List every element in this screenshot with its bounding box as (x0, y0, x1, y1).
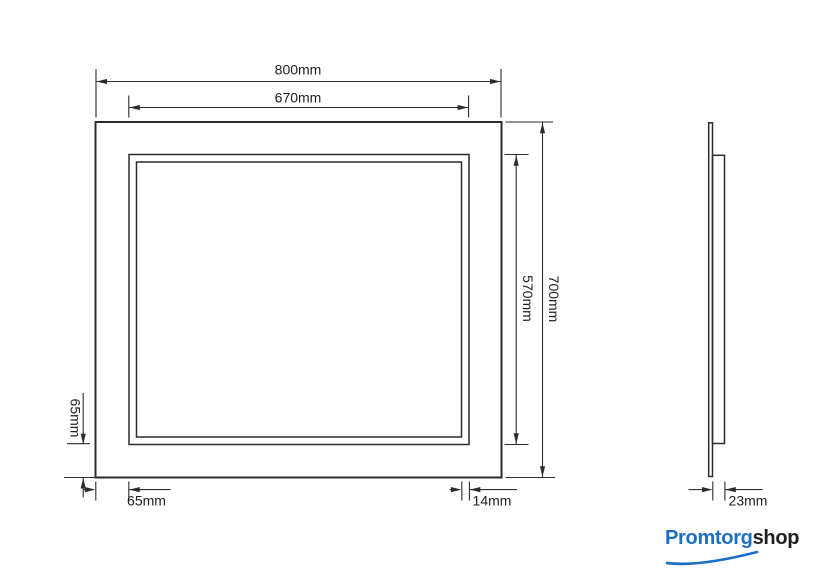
dim-depth: 23mm (689, 482, 768, 509)
dim-outer-height-label: 700mm (546, 276, 562, 323)
technical-drawing-page: { "page": { "background": "#ffffff" }, "… (0, 0, 840, 578)
dim-depth-label: 23mm (729, 493, 768, 509)
dim-bottom-margin: 65mm (84, 482, 171, 509)
dim-outer-width-label: 800mm (275, 62, 322, 78)
dim-inner-height: 570mm (505, 155, 536, 445)
side-view (709, 123, 725, 477)
brand-logo-swoosh-icon (664, 550, 760, 568)
dim-inner-height-label: 570mm (520, 275, 536, 322)
dim-inner-width: 670mm (129, 90, 469, 118)
mirror-outer-rect (96, 122, 502, 478)
brand-logo-primary-text: Promtorg (665, 527, 753, 549)
dim-left-margin-label: 65mm (68, 399, 84, 438)
brand-logo-secondary-text: shop (753, 527, 800, 549)
arrowhead-right-icon (458, 105, 469, 110)
dim-inner-width-label: 670mm (275, 90, 322, 106)
arrowhead-up-icon (81, 478, 86, 489)
dim-left-margin: 65mm (64, 393, 95, 498)
arrowhead-right-icon (451, 487, 462, 492)
arrowhead-left-icon (97, 79, 108, 84)
arrowhead-up-icon (540, 123, 545, 134)
mirror-frame-outer-rect (129, 155, 469, 445)
arrowhead-right-icon (490, 79, 501, 84)
mirror-frame-inner-rect (137, 162, 462, 437)
dim-frame-width-label: 14mm (473, 493, 512, 509)
arrowhead-down-icon (514, 433, 519, 444)
front-view (96, 122, 502, 478)
drawing-canvas: 800mm 670mm 570mm 700mm 65mm (0, 0, 840, 578)
brand-logo: Promtorgshop (665, 527, 815, 551)
arrowhead-left-icon (129, 105, 140, 110)
arrowhead-right-icon (702, 487, 713, 492)
dim-frame-width: 14mm (450, 482, 518, 509)
side-backing-rect (713, 155, 725, 443)
arrowhead-down-icon (540, 466, 545, 477)
dim-bottom-margin-label: 65mm (127, 493, 166, 509)
arrowhead-right-icon (85, 487, 96, 492)
arrowhead-up-icon (514, 155, 519, 166)
